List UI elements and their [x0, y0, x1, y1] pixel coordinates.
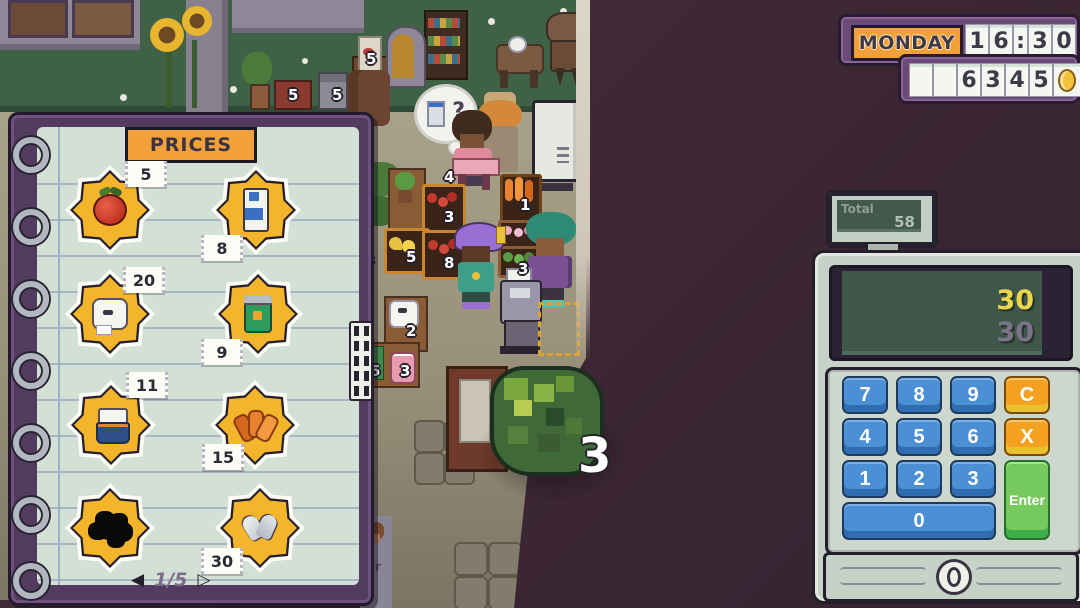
notebook-title: PRICES [125, 127, 257, 163]
window-frame [0, 0, 140, 50]
price-tag: 8 [201, 235, 243, 261]
price-item-unknown[interactable] [65, 483, 155, 573]
drawer-groove [976, 567, 1062, 585]
drawer-groove [840, 567, 926, 585]
shrine-mirror [386, 26, 426, 88]
checkout-scale [500, 268, 540, 354]
window-frame [232, 0, 364, 33]
path-tile [414, 452, 445, 485]
price-tag: 5 [125, 161, 167, 187]
white-flower [488, 18, 495, 25]
toilet-paper-icon [92, 298, 128, 330]
time-digit: 1 [965, 24, 989, 58]
coin-cell [1053, 63, 1080, 97]
page-edge-marker [349, 321, 373, 401]
spiral-ring-icon [13, 353, 49, 389]
milk-carton-icon [243, 188, 269, 232]
price-tag: 20 [123, 267, 165, 293]
white-flower [302, 58, 308, 64]
table-leg [500, 70, 508, 88]
price-item-milk[interactable]: 8 [211, 165, 301, 255]
small-plant [242, 52, 272, 86]
table-leg [530, 70, 538, 88]
entered-price: 30 [996, 285, 1034, 316]
total-monitor: Total 58 [826, 190, 938, 248]
spiral-ring-icon [13, 281, 49, 317]
next-page-arrow-icon[interactable]: ▷ [197, 570, 210, 590]
prev-page-arrow-icon[interactable]: ◀ [131, 570, 144, 590]
time-digit: 0 [1052, 24, 1076, 58]
key-7[interactable]: 7 [842, 376, 888, 414]
key-9[interactable]: 9 [950, 376, 996, 414]
money-panel: 6 3 4 5 [898, 54, 1080, 104]
noodle-cup-icon [96, 408, 126, 442]
key-8[interactable]: 8 [896, 376, 942, 414]
stock-count: 4 [444, 170, 454, 185]
keypad-panel: 7 8 9 C 4 5 6 X 1 2 3 0 Enter [825, 367, 1080, 555]
key-3[interactable]: 3 [950, 460, 996, 498]
money-digit: 6 [957, 63, 981, 97]
time-digit: 3 [1028, 24, 1052, 58]
keyhole-icon [936, 559, 972, 595]
unknown-item-icon [97, 516, 123, 540]
fried-snack-icon [237, 408, 273, 442]
price-tag: 11 [126, 372, 168, 398]
total-screen: Total 58 [837, 200, 921, 232]
reference-price: 30 [996, 317, 1034, 348]
spiral-ring-icon [13, 497, 49, 533]
total-value: 58 [894, 213, 915, 231]
spiral-ring-icon [13, 425, 49, 461]
money-digit: 5 [1029, 63, 1053, 97]
coin-icon [1058, 69, 1076, 92]
price-item-snack[interactable]: 15 [210, 380, 300, 470]
price-item-soda-can[interactable]: 9 [213, 269, 303, 359]
spiral-ring-icon [13, 209, 49, 245]
stock-count: 3 [400, 364, 410, 379]
cashier-character [454, 220, 506, 310]
key-6[interactable]: 6 [950, 418, 996, 456]
price-item-noodle-cup[interactable]: 11 [66, 380, 156, 470]
money-digit [909, 63, 933, 97]
game-screen: ? [0, 0, 1080, 608]
path-tile [488, 542, 522, 576]
stock-count: 5 [406, 250, 416, 265]
teapot [508, 36, 527, 53]
white-flower [120, 94, 127, 101]
wall-edge-highlight [576, 0, 590, 362]
path-tile [414, 420, 445, 453]
table-leg [482, 174, 490, 190]
time-colon: : [1013, 24, 1028, 58]
key-0[interactable]: 0 [842, 502, 996, 540]
price-item-heart[interactable]: 30 [215, 483, 305, 573]
thought-item-icon [427, 101, 445, 127]
stock-count: 1 [520, 198, 530, 213]
money-digit: 3 [981, 63, 1005, 97]
time-digit: 6 [989, 24, 1013, 58]
key-1[interactable]: 1 [842, 460, 888, 498]
sunflower-stem [166, 50, 172, 108]
time-display: 1 6 : 3 0 [965, 24, 1076, 58]
bookshelf [424, 10, 468, 80]
key-multiply[interactable]: X [1004, 418, 1050, 456]
sunflower-stem [192, 40, 197, 108]
plant-stand [388, 168, 426, 234]
shrine-glow [392, 34, 414, 78]
book-row [428, 54, 460, 64]
key-2[interactable]: 2 [896, 460, 942, 498]
key-4[interactable]: 4 [842, 418, 888, 456]
register-screen-bezel: 30 30 [829, 265, 1073, 361]
cash-register: 30 30 7 8 9 C 4 5 6 X 1 2 3 0 Enter [812, 250, 1080, 604]
white-flower [230, 86, 237, 93]
key-enter[interactable]: Enter [1004, 460, 1050, 540]
path-tile [454, 542, 488, 576]
book-row [428, 18, 460, 28]
stock-count: 3 [518, 262, 528, 277]
sunflower [150, 18, 184, 52]
path-tile [488, 576, 522, 608]
stock-count: 3 [444, 210, 454, 225]
money-digit: 4 [1005, 63, 1029, 97]
stock-count: 8 [444, 256, 454, 271]
stock-count: 5 [288, 88, 298, 103]
picture [8, 0, 68, 38]
prices-notebook: PRICES 5 8 20 [8, 112, 374, 606]
price-item-toilet-paper[interactable]: 20 [65, 269, 155, 359]
held-item-count: 3 [578, 432, 611, 480]
stock-count: 5 [366, 52, 376, 67]
key-5[interactable]: 5 [896, 418, 942, 456]
spiral-ring-icon [13, 137, 49, 173]
total-label: Total [841, 202, 874, 216]
silver-heart-icon [244, 514, 276, 542]
path-tile [454, 576, 488, 608]
sunflower [182, 6, 212, 36]
price-tag: 9 [201, 339, 243, 365]
key-clear[interactable]: C [1004, 376, 1050, 414]
price-item-apple[interactable]: 5 [65, 165, 155, 255]
page-indicator: 1/5 [154, 569, 187, 591]
placement-target[interactable] [538, 302, 580, 356]
register-screen: 30 30 [842, 271, 1042, 355]
book-row [428, 36, 460, 46]
cash-drawer[interactable] [823, 552, 1079, 602]
stock-count: 5 [332, 88, 342, 103]
price-tag: 15 [202, 444, 244, 470]
notebook-pagination: ◀ 1/5 ▷ [131, 569, 251, 591]
apple-icon [93, 194, 127, 226]
spiral-ring-icon [13, 563, 49, 599]
money-display: 6 3 4 5 [909, 63, 1080, 97]
soda-can-icon [244, 295, 272, 333]
plant-pot [250, 84, 270, 110]
picture [72, 0, 134, 38]
money-digit [933, 63, 957, 97]
stock-count: 2 [406, 324, 416, 339]
